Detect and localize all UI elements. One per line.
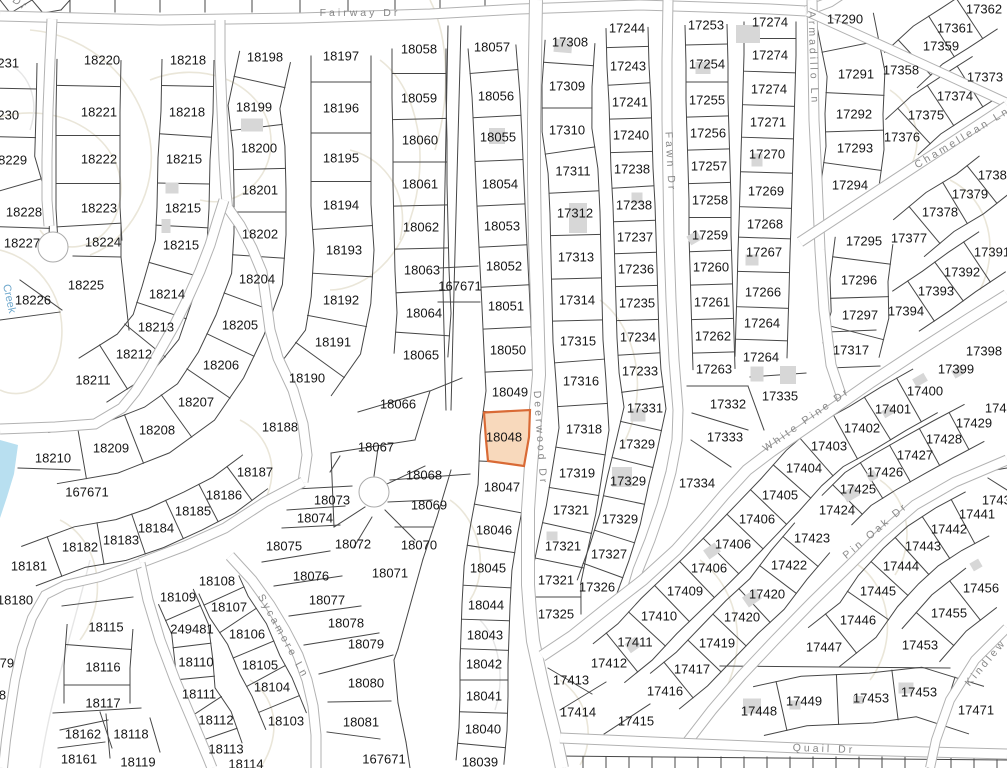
svg-text:17438: 17438 xyxy=(982,493,1007,508)
svg-text:17391: 17391 xyxy=(974,245,1007,260)
svg-text:18065: 18065 xyxy=(403,348,439,363)
svg-text:17257: 17257 xyxy=(691,159,727,174)
svg-text:17270: 17270 xyxy=(749,147,785,162)
svg-text:17259: 17259 xyxy=(692,228,728,243)
svg-text:17264: 17264 xyxy=(744,316,780,331)
svg-text:17423: 17423 xyxy=(794,531,830,546)
svg-text:18198: 18198 xyxy=(247,50,283,65)
svg-text:18078: 18078 xyxy=(328,616,364,631)
svg-text:17241: 17241 xyxy=(612,95,648,110)
svg-text:18224: 18224 xyxy=(85,235,121,250)
svg-text:17419: 17419 xyxy=(699,636,735,651)
svg-text:17233: 17233 xyxy=(622,364,658,379)
svg-text:18049: 18049 xyxy=(492,385,528,400)
svg-text:17315: 17315 xyxy=(560,334,596,349)
svg-text:17325: 17325 xyxy=(538,607,574,622)
svg-text:17321: 17321 xyxy=(553,503,589,518)
svg-text:17262: 17262 xyxy=(695,329,731,344)
svg-text:18188: 18188 xyxy=(262,420,298,435)
svg-text:17425: 17425 xyxy=(840,482,876,497)
svg-text:18195: 18195 xyxy=(323,151,359,166)
svg-text:18183: 18183 xyxy=(103,533,139,548)
svg-text:18064: 18064 xyxy=(406,306,442,321)
svg-text:18046: 18046 xyxy=(476,523,512,538)
svg-text:17321: 17321 xyxy=(538,573,574,588)
svg-text:18215: 18215 xyxy=(166,152,202,167)
svg-text:18057: 18057 xyxy=(474,40,510,55)
svg-text:18119: 18119 xyxy=(120,755,155,768)
svg-text:17361: 17361 xyxy=(937,21,973,36)
svg-text:18079: 18079 xyxy=(348,637,384,652)
svg-text:17447: 17447 xyxy=(806,640,842,655)
svg-text:17420: 17420 xyxy=(749,587,785,602)
svg-text:18118: 18118 xyxy=(113,727,148,742)
svg-text:17253: 17253 xyxy=(688,18,724,33)
svg-text:17409: 17409 xyxy=(667,584,703,599)
svg-text:18182: 18182 xyxy=(62,540,98,555)
svg-text:17329: 17329 xyxy=(602,512,638,527)
svg-text:18081: 18081 xyxy=(343,715,379,730)
svg-text:17274: 17274 xyxy=(752,48,788,63)
svg-text:18211: 18211 xyxy=(75,373,110,388)
svg-text:18187: 18187 xyxy=(237,465,273,480)
svg-text:18194: 18194 xyxy=(323,198,359,213)
svg-text:18077: 18077 xyxy=(309,593,345,608)
svg-text:17401: 17401 xyxy=(875,402,911,417)
svg-text:18206: 18206 xyxy=(203,358,239,373)
svg-text:18207: 18207 xyxy=(178,395,214,410)
svg-text:17313: 17313 xyxy=(558,250,594,265)
svg-text:17310: 17310 xyxy=(549,123,585,138)
svg-text:18179: 18179 xyxy=(0,656,14,671)
svg-text:18044: 18044 xyxy=(468,598,504,613)
svg-text:17274: 17274 xyxy=(752,15,788,30)
svg-text:17443: 17443 xyxy=(905,539,941,554)
svg-text:18059: 18059 xyxy=(401,91,437,106)
svg-text:17424: 17424 xyxy=(819,503,855,518)
svg-text:17442: 17442 xyxy=(931,522,967,537)
svg-text:18215: 18215 xyxy=(165,201,201,216)
svg-text:18062: 18062 xyxy=(403,220,439,235)
svg-text:18067: 18067 xyxy=(358,440,394,455)
svg-text:17381: 17381 xyxy=(978,168,1007,183)
svg-text:17428: 17428 xyxy=(926,432,962,447)
svg-text:18178: 18178 xyxy=(0,688,6,703)
svg-text:18040: 18040 xyxy=(465,722,501,737)
svg-text:18220: 18220 xyxy=(84,53,120,68)
svg-text:17334: 17334 xyxy=(679,476,715,491)
svg-text:17429: 17429 xyxy=(956,416,992,431)
svg-text:17333: 17333 xyxy=(707,430,743,445)
svg-text:17318: 17318 xyxy=(566,422,602,437)
svg-text:18209: 18209 xyxy=(93,441,129,456)
svg-text:18109: 18109 xyxy=(160,590,196,605)
svg-text:17426: 17426 xyxy=(867,465,903,480)
svg-text:17327: 17327 xyxy=(591,547,627,562)
svg-text:18061: 18061 xyxy=(402,177,438,192)
svg-text:17264: 17264 xyxy=(743,350,779,365)
svg-text:17316: 17316 xyxy=(563,374,599,389)
svg-text:17406: 17406 xyxy=(739,512,775,527)
svg-text:18055: 18055 xyxy=(480,130,516,145)
svg-text:Fairway Dr: Fairway Dr xyxy=(320,7,401,19)
svg-text:17471: 17471 xyxy=(958,703,994,718)
svg-text:18199: 18199 xyxy=(236,100,272,115)
svg-text:18042: 18042 xyxy=(466,657,502,672)
svg-text:18070: 18070 xyxy=(401,538,437,553)
svg-text:18117: 18117 xyxy=(85,696,120,711)
svg-text:17406: 17406 xyxy=(691,561,727,576)
svg-text:18201: 18201 xyxy=(242,183,278,198)
svg-text:18226: 18226 xyxy=(15,293,51,308)
svg-text:18190: 18190 xyxy=(289,371,325,386)
svg-text:17377: 17377 xyxy=(891,231,927,246)
svg-text:17446: 17446 xyxy=(840,613,876,628)
svg-text:18050: 18050 xyxy=(490,343,526,358)
svg-text:17399: 17399 xyxy=(938,362,974,377)
svg-text:18045: 18045 xyxy=(470,561,506,576)
svg-text:17413: 17413 xyxy=(553,673,589,688)
svg-text:18204: 18204 xyxy=(239,272,275,287)
svg-text:17266: 17266 xyxy=(745,285,781,300)
svg-text:17238: 17238 xyxy=(616,198,652,213)
svg-text:18196: 18196 xyxy=(323,101,359,116)
svg-text:18197: 18197 xyxy=(323,49,359,64)
svg-text:17400: 17400 xyxy=(907,384,943,399)
svg-text:18053: 18053 xyxy=(484,219,520,234)
svg-text:18060: 18060 xyxy=(402,133,438,148)
svg-text:18063: 18063 xyxy=(404,263,440,278)
svg-text:18215: 18215 xyxy=(163,238,199,253)
svg-text:17422: 17422 xyxy=(771,558,807,573)
svg-text:17404: 17404 xyxy=(786,461,822,476)
svg-text:17263: 17263 xyxy=(696,362,732,377)
svg-text:17410: 17410 xyxy=(641,609,677,624)
svg-text:17269: 17269 xyxy=(748,184,784,199)
svg-text:18076: 18076 xyxy=(293,569,329,584)
svg-text:17260: 17260 xyxy=(693,260,729,275)
svg-text:17430: 17430 xyxy=(985,401,1007,416)
svg-text:17329: 17329 xyxy=(619,437,655,452)
svg-text:17453: 17453 xyxy=(901,685,937,700)
svg-text:17420: 17420 xyxy=(724,610,760,625)
svg-text:17268: 17268 xyxy=(747,217,783,232)
svg-text:17448: 17448 xyxy=(741,704,777,719)
svg-text:18205: 18205 xyxy=(222,318,258,333)
svg-text:18112: 18112 xyxy=(198,713,233,728)
svg-text:17293: 17293 xyxy=(837,141,873,156)
svg-text:17254: 17254 xyxy=(689,57,725,72)
svg-text:18043: 18043 xyxy=(467,628,503,643)
svg-text:17321: 17321 xyxy=(545,539,581,554)
svg-text:17295: 17295 xyxy=(846,234,882,249)
svg-text:17445: 17445 xyxy=(860,584,896,599)
svg-text:17444: 17444 xyxy=(883,559,919,574)
svg-text:18111: 18111 xyxy=(182,687,216,702)
svg-text:17359: 17359 xyxy=(923,39,959,54)
svg-text:18069: 18069 xyxy=(411,498,447,513)
svg-text:18221: 18221 xyxy=(81,105,117,120)
svg-text:17411: 17411 xyxy=(617,635,652,650)
svg-text:249481: 249481 xyxy=(170,622,213,637)
svg-text:17291: 17291 xyxy=(838,67,874,82)
svg-text:18104: 18104 xyxy=(254,680,290,695)
svg-text:18058: 18058 xyxy=(401,42,437,57)
svg-text:18074: 18074 xyxy=(297,511,333,526)
svg-text:18200: 18200 xyxy=(241,141,277,156)
svg-text:18071: 18071 xyxy=(372,566,408,581)
svg-text:167671: 167671 xyxy=(438,279,481,294)
svg-text:18202: 18202 xyxy=(242,227,278,242)
svg-text:18218: 18218 xyxy=(169,105,205,120)
svg-text:18185: 18185 xyxy=(175,504,211,519)
svg-text:18080: 18080 xyxy=(348,676,384,691)
svg-text:17237: 17237 xyxy=(617,230,653,245)
svg-text:18052: 18052 xyxy=(486,259,522,274)
svg-text:18181: 18181 xyxy=(11,559,47,574)
svg-text:18210: 18210 xyxy=(35,451,71,466)
svg-text:18041: 18041 xyxy=(466,689,502,704)
svg-text:18191: 18191 xyxy=(315,335,351,350)
svg-text:17319: 17319 xyxy=(559,466,595,481)
svg-text:17453: 17453 xyxy=(853,691,889,706)
svg-text:17362: 17362 xyxy=(966,2,1002,17)
svg-text:18047: 18047 xyxy=(484,480,520,495)
svg-text:18108: 18108 xyxy=(199,574,235,589)
svg-text:17392: 17392 xyxy=(944,265,980,280)
svg-text:18227: 18227 xyxy=(4,236,40,251)
svg-text:17393: 17393 xyxy=(918,284,954,299)
svg-text:18213: 18213 xyxy=(138,320,174,335)
svg-text:17379: 17379 xyxy=(952,187,988,202)
svg-text:17294: 17294 xyxy=(832,178,868,193)
svg-text:17453: 17453 xyxy=(902,638,938,653)
svg-text:17274: 17274 xyxy=(751,82,787,97)
svg-text:17292: 17292 xyxy=(836,107,872,122)
svg-text:18218: 18218 xyxy=(170,53,206,68)
svg-text:17308: 17308 xyxy=(552,35,588,50)
svg-text:17240: 17240 xyxy=(613,128,649,143)
svg-text:18106: 18106 xyxy=(229,627,265,642)
svg-text:17271: 17271 xyxy=(750,115,786,130)
svg-text:18051: 18051 xyxy=(488,299,524,314)
svg-text:17417: 17417 xyxy=(674,662,710,677)
svg-text:17235: 17235 xyxy=(619,296,655,311)
svg-text:18107: 18107 xyxy=(211,600,247,615)
svg-text:18054: 18054 xyxy=(482,177,518,192)
svg-text:18103: 18103 xyxy=(268,714,304,729)
svg-text:18075: 18075 xyxy=(266,539,302,554)
svg-text:18116: 18116 xyxy=(85,660,120,675)
svg-text:17243: 17243 xyxy=(610,59,646,74)
svg-text:17329: 17329 xyxy=(610,474,646,489)
svg-text:18110: 18110 xyxy=(178,655,213,670)
svg-text:17416: 17416 xyxy=(647,684,683,699)
svg-text:17412: 17412 xyxy=(591,656,627,671)
svg-text:17317: 17317 xyxy=(833,343,869,358)
svg-text:17326: 17326 xyxy=(579,580,615,595)
svg-text:18066: 18066 xyxy=(380,397,416,412)
svg-text:17415: 17415 xyxy=(618,714,654,729)
svg-text:17403: 17403 xyxy=(811,439,847,454)
svg-text:17311: 17311 xyxy=(555,164,590,179)
svg-text:17296: 17296 xyxy=(841,273,877,288)
svg-text:17378: 17378 xyxy=(922,205,958,220)
svg-text:167671: 167671 xyxy=(65,485,108,500)
svg-text:18073: 18073 xyxy=(314,493,350,508)
svg-text:17255: 17255 xyxy=(689,93,725,108)
svg-text:17244: 17244 xyxy=(609,21,645,36)
svg-text:17238: 17238 xyxy=(614,162,650,177)
svg-text:18113: 18113 xyxy=(208,742,243,757)
svg-text:18039: 18039 xyxy=(462,755,498,768)
svg-text:18184: 18184 xyxy=(138,521,174,536)
svg-text:17398: 17398 xyxy=(966,344,1002,359)
svg-text:17374: 17374 xyxy=(937,89,973,104)
svg-text:18231: 18231 xyxy=(0,56,19,71)
svg-text:18056: 18056 xyxy=(478,89,514,104)
svg-text:18192: 18192 xyxy=(323,293,359,308)
svg-text:18161: 18161 xyxy=(61,752,97,767)
svg-text:18072: 18072 xyxy=(335,537,371,552)
svg-text:17267: 17267 xyxy=(746,245,782,260)
svg-text:167671: 167671 xyxy=(362,752,405,767)
svg-text:18230: 18230 xyxy=(0,108,19,123)
svg-text:18114: 18114 xyxy=(228,757,263,768)
svg-text:17406: 17406 xyxy=(715,537,751,552)
svg-text:18162: 18162 xyxy=(65,727,101,742)
svg-text:17256: 17256 xyxy=(690,126,726,141)
svg-text:Quail Dr: Quail Dr xyxy=(793,742,856,756)
svg-text:17427: 17427 xyxy=(897,448,933,463)
svg-text:17376: 17376 xyxy=(884,130,920,145)
svg-text:17394: 17394 xyxy=(888,304,924,319)
svg-text:17441: 17441 xyxy=(959,507,995,522)
svg-text:17290: 17290 xyxy=(827,12,863,27)
svg-text:17258: 17258 xyxy=(692,193,728,208)
svg-text:17261: 17261 xyxy=(694,295,730,310)
svg-text:18225: 18225 xyxy=(68,278,104,293)
svg-text:18068: 18068 xyxy=(406,468,442,483)
svg-text:18214: 18214 xyxy=(149,287,185,302)
svg-text:17405: 17405 xyxy=(762,488,798,503)
svg-text:17358: 17358 xyxy=(883,63,919,78)
svg-text:17402: 17402 xyxy=(844,421,880,436)
svg-text:17414: 17414 xyxy=(560,705,596,720)
svg-text:17332: 17332 xyxy=(710,397,746,412)
svg-text:17236: 17236 xyxy=(618,262,654,277)
svg-text:17314: 17314 xyxy=(559,293,595,308)
svg-text:18223: 18223 xyxy=(81,201,117,216)
svg-text:17455: 17455 xyxy=(931,606,967,621)
svg-text:18115: 18115 xyxy=(88,620,123,635)
svg-text:17297: 17297 xyxy=(842,308,878,323)
svg-text:18212: 18212 xyxy=(116,347,152,362)
svg-text:18222: 18222 xyxy=(81,152,117,167)
svg-text:17309: 17309 xyxy=(549,79,585,94)
svg-text:17335: 17335 xyxy=(762,389,798,404)
svg-text:17373: 17373 xyxy=(967,70,1003,85)
svg-text:18193: 18193 xyxy=(326,243,362,258)
svg-text:17234: 17234 xyxy=(620,330,656,345)
svg-text:17331: 17331 xyxy=(627,401,663,416)
svg-text:17449: 17449 xyxy=(786,694,822,709)
svg-text:18208: 18208 xyxy=(139,423,175,438)
svg-text:17456: 17456 xyxy=(963,581,999,596)
svg-text:18228: 18228 xyxy=(6,205,42,220)
svg-text:17375: 17375 xyxy=(908,108,944,123)
svg-text:18048: 18048 xyxy=(486,430,522,445)
svg-text:18105: 18105 xyxy=(242,658,278,673)
svg-text:18229: 18229 xyxy=(0,153,27,168)
svg-text:18186: 18186 xyxy=(206,488,242,503)
svg-text:17312: 17312 xyxy=(557,206,593,221)
svg-text:18180: 18180 xyxy=(0,593,33,608)
